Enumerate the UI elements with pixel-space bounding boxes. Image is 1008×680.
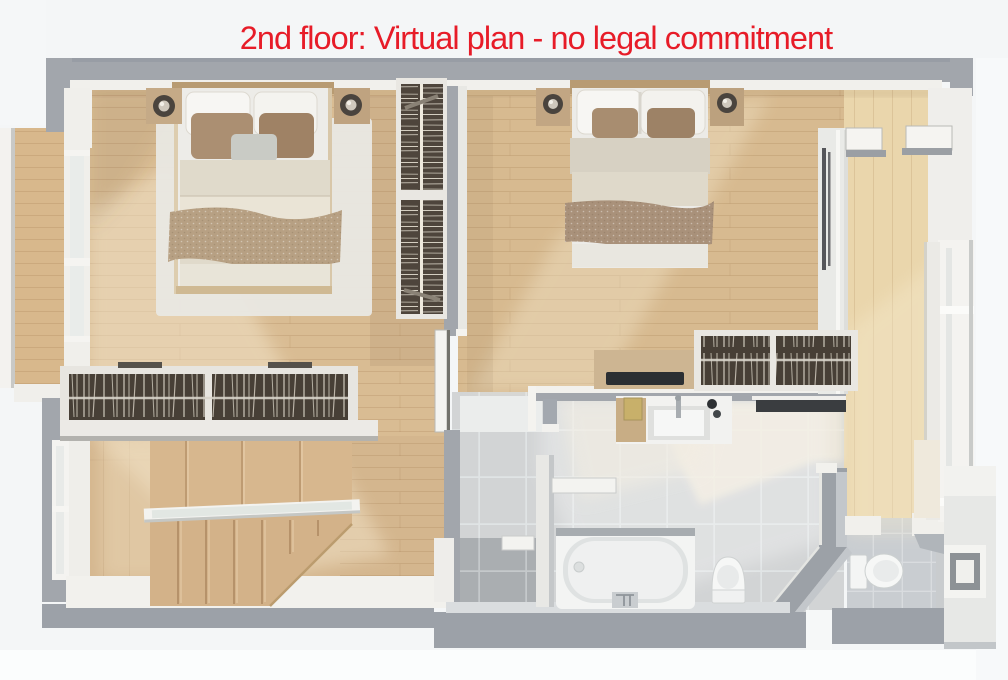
svg-text:2nd floor: Virtual plan - no l: 2nd floor: Virtual plan - no legal commi… xyxy=(240,20,833,56)
